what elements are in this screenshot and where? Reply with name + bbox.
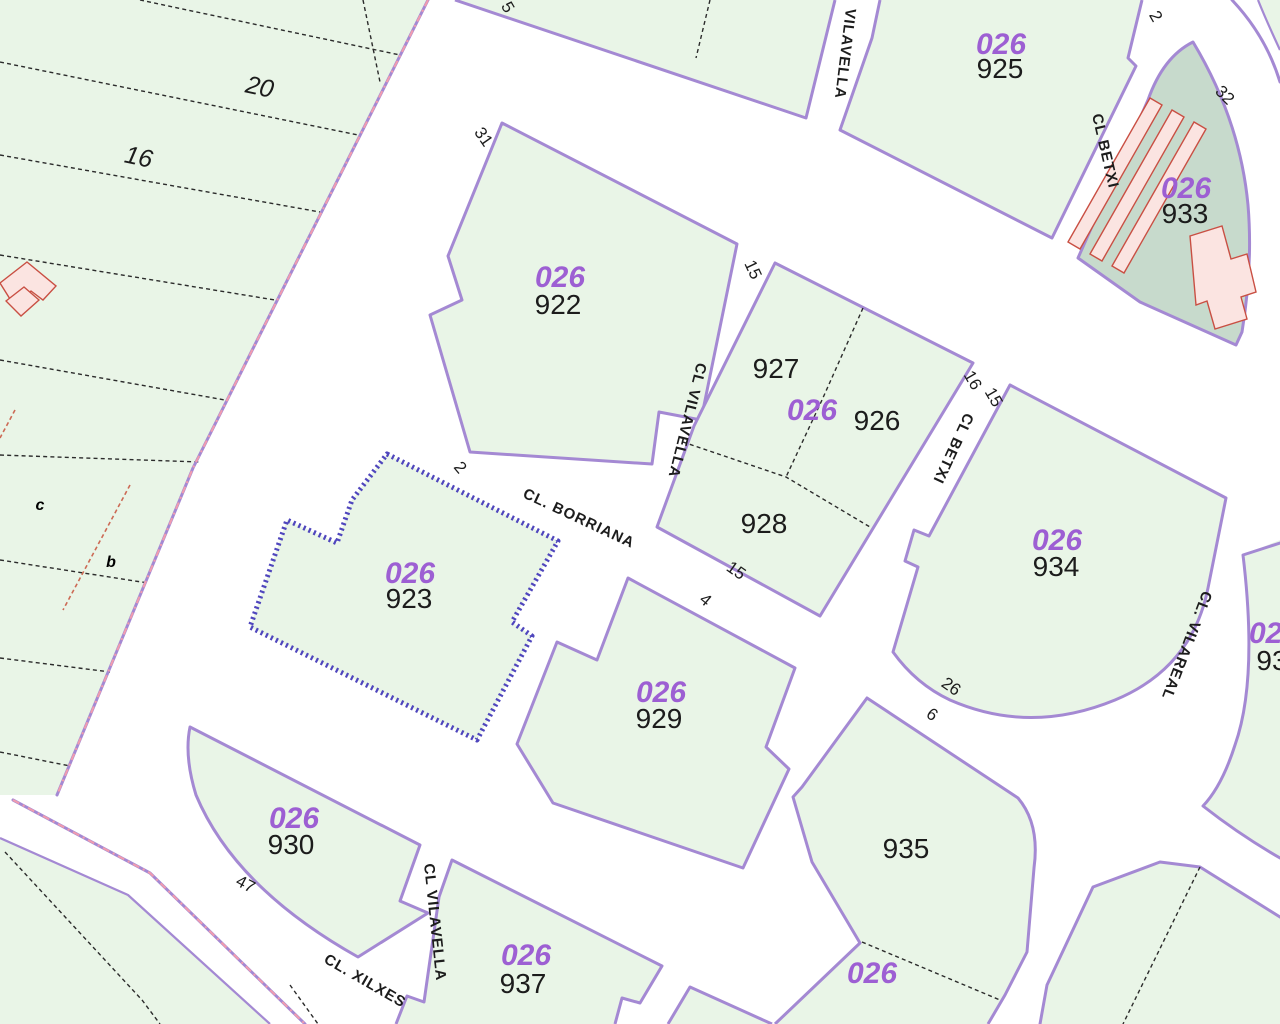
parcel-number-east-partial: 93 xyxy=(1256,645,1280,676)
rural-parcel-number-16: 16 xyxy=(122,141,155,174)
block-code-935-south: 026 xyxy=(847,957,897,990)
parcel-number-926: 926 xyxy=(854,405,901,436)
parcel-number-925: 925 xyxy=(977,53,1024,84)
parcel-number-933: 933 xyxy=(1162,198,1209,229)
parcel-number-929: 929 xyxy=(636,703,683,734)
parcel-number-923: 923 xyxy=(386,583,433,614)
block-code-926: 026 xyxy=(787,394,837,427)
parcel-number-927: 927 xyxy=(753,353,800,384)
parcel-number-934: 934 xyxy=(1033,551,1080,582)
parcel-number-928: 928 xyxy=(741,508,788,539)
subparcel-letter-c: c xyxy=(36,497,45,514)
subparcel-letter-b: b xyxy=(106,554,116,571)
rural-parcel-number-20: 20 xyxy=(242,70,276,103)
cadastral-map-canvas: 0260260260260260260260260260260269229259… xyxy=(0,0,1280,1024)
parcel-number-922: 922 xyxy=(535,289,582,320)
parcel-number-935: 935 xyxy=(883,833,930,864)
parcel-number-930: 930 xyxy=(268,829,315,860)
parcel-number-937: 937 xyxy=(500,968,547,999)
